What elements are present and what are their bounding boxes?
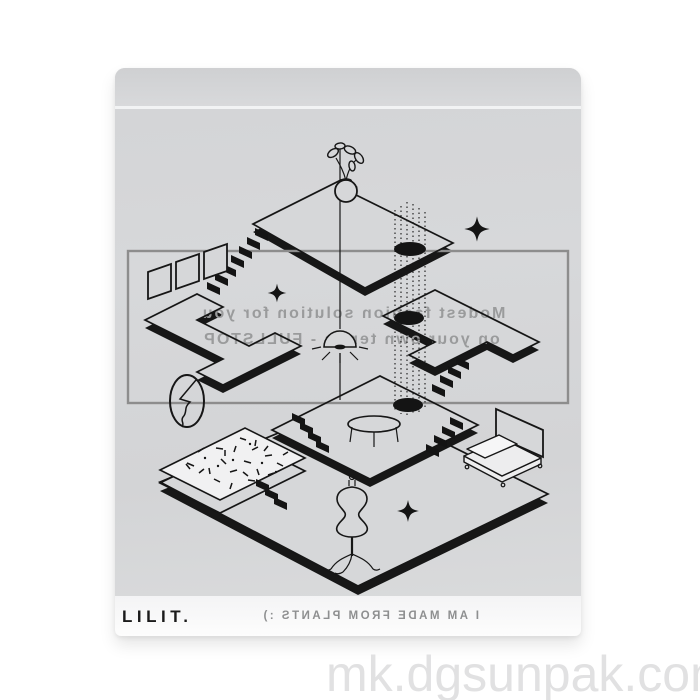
watermark-text: mk.dgsunpak.com — [326, 645, 700, 700]
back-print-footer-text: I AM MADE FROM PLANTS :) — [255, 610, 485, 622]
portal-hole-3 — [393, 398, 423, 412]
brand-logo-text: LILIT. — [122, 607, 192, 627]
picture-frame-icon — [204, 244, 227, 279]
picture-frame-icon — [176, 254, 199, 289]
back-print-line1: Modest fashion solution for you — [201, 305, 506, 322]
lightning-oval-icon — [170, 375, 204, 427]
picture-frame-icon — [148, 264, 171, 299]
product-photo: Modest fashion solution for you on your … — [0, 0, 700, 700]
portal-hole-2 — [394, 311, 424, 325]
portal-hole-1 — [394, 242, 426, 256]
sparkle-icon — [268, 284, 287, 303]
sparkle-icon — [464, 216, 489, 241]
isometric-illustration: Modest fashion solution for you on your … — [0, 0, 700, 700]
